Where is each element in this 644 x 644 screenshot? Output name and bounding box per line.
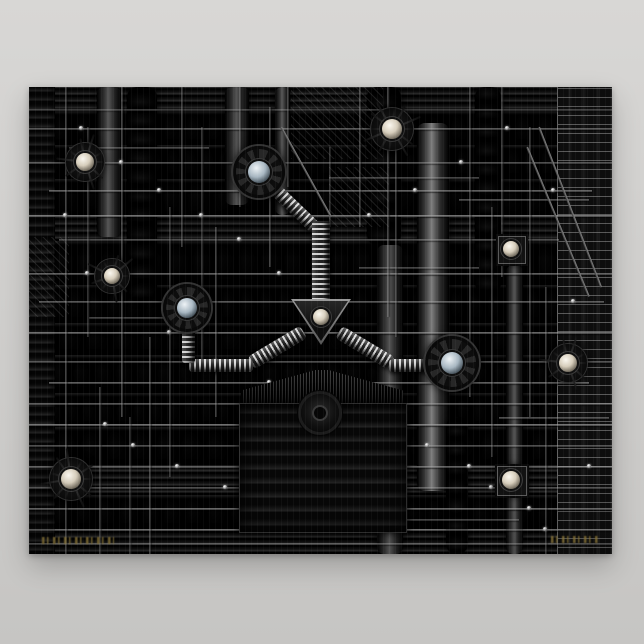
horizontal-wire (29, 162, 612, 164)
rivet-dot (157, 188, 161, 192)
vertical-wire (181, 87, 183, 247)
page-background: { "scene": { "background": {"top": "#d8d… (0, 0, 644, 644)
vertical-beads-column (127, 87, 157, 301)
horizontal-wire (359, 267, 479, 269)
vertical-wire (529, 127, 531, 417)
rivet-dot (425, 443, 429, 447)
vertical-wire (545, 287, 547, 554)
horizontal-wire (499, 417, 609, 419)
artist-signature (42, 537, 114, 544)
rivet-dot (505, 126, 509, 130)
rivet-dot (551, 188, 555, 192)
rivet-dot (467, 464, 471, 468)
horizontal-wire (49, 190, 592, 192)
vertical-wire (99, 387, 101, 554)
rivet-dot (63, 213, 67, 217)
horizontal-wire (29, 543, 612, 545)
rivet-dot (571, 299, 575, 303)
vertical-pipe-column (506, 265, 523, 554)
rivet-dot (103, 422, 107, 426)
rivet-dot (167, 330, 171, 334)
rivet-dot (413, 188, 417, 192)
rivet-dot (85, 271, 89, 275)
rivet-dot (459, 160, 463, 164)
mounted-rivet-ball (503, 241, 519, 257)
ribbed-tube-horizontal (189, 359, 253, 372)
rivet-dot (489, 485, 493, 489)
triangle-center-ball (313, 309, 329, 325)
vertical-wire (395, 147, 397, 337)
rivet-dot (199, 213, 203, 217)
poster-artwork (29, 87, 612, 554)
horizontal-wire (29, 361, 612, 363)
spider-rivet-ball (382, 119, 402, 139)
horizontal-wire (29, 109, 612, 111)
ribbed-screw-column (312, 221, 330, 305)
spider-rivet-ball (559, 354, 577, 372)
vertical-ladder-column (557, 87, 612, 554)
rivet-dot (119, 160, 123, 164)
hatch-texture (29, 237, 69, 317)
vertical-wire (201, 127, 203, 367)
vertical-wire (359, 87, 361, 227)
artist-signature (551, 536, 599, 543)
rivet-dot (277, 271, 281, 275)
rivet-dot (237, 237, 241, 241)
horizontal-wire (459, 199, 589, 201)
rivet-dot (543, 527, 547, 531)
vertical-beads-column (446, 417, 468, 554)
vertical-wire (169, 207, 171, 477)
rivet-dot (223, 485, 227, 489)
vertical-wire (149, 337, 151, 554)
gear-center-ball (248, 161, 270, 183)
vertical-wire (121, 87, 123, 417)
gear-center-ball (177, 298, 197, 318)
rivet-dot (527, 506, 531, 510)
rivet-dot (175, 464, 179, 468)
horizontal-wire (59, 239, 559, 241)
vertical-wire (215, 227, 217, 417)
spider-rivet-ball (76, 153, 94, 171)
horizontal-wire (29, 215, 612, 217)
spider-rivet-ball (61, 469, 81, 489)
rivet-dot (587, 464, 591, 468)
vertical-wire (491, 207, 493, 457)
horizontal-wire (329, 177, 479, 179)
spider-rivet-ball (104, 268, 120, 284)
hatch-texture (291, 87, 383, 159)
gear-center-ball (441, 352, 463, 374)
mounted-rivet-ball (502, 471, 520, 489)
panel-hub-gear (301, 394, 339, 432)
horizontal-wire (29, 128, 612, 130)
rivet-dot (131, 443, 135, 447)
vertical-wire (129, 417, 131, 554)
rivet-dot (79, 126, 83, 130)
rivet-dot (367, 213, 371, 217)
